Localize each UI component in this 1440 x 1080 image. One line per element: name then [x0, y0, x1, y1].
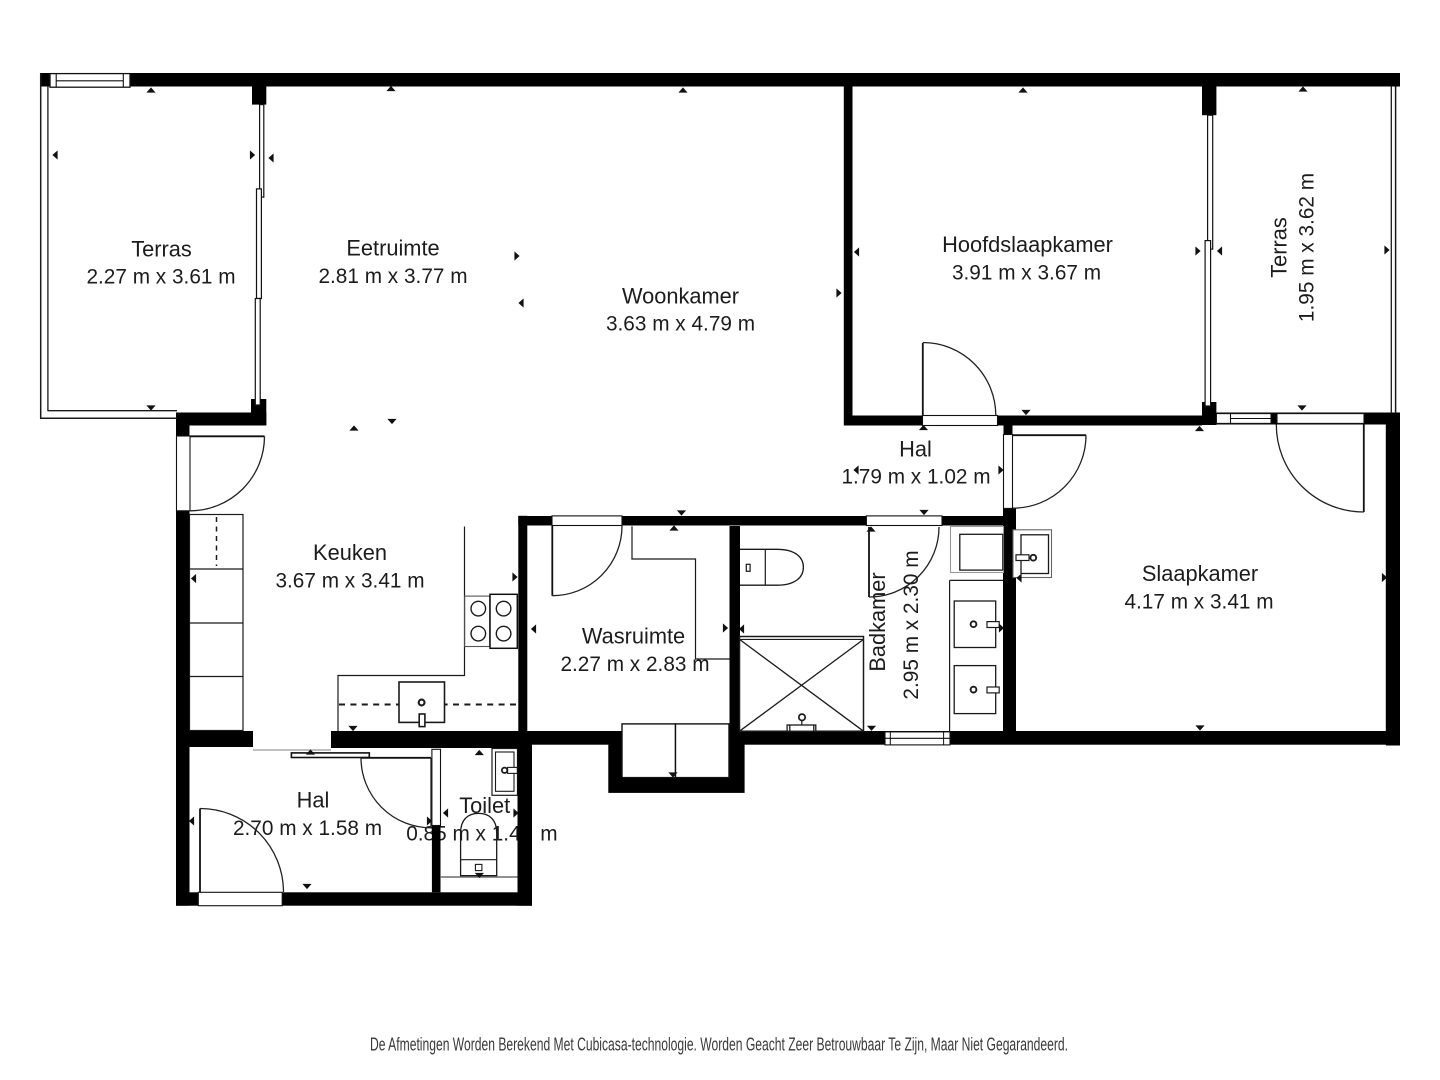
- svg-text:3.91 m x 3.67 m: 3.91 m x 3.67 m: [952, 262, 1101, 285]
- svg-text:Slaapkamer: Slaapkamer: [1142, 561, 1258, 586]
- svg-text:0.85 m x 1.4: 0.85 m x 1.4: [406, 823, 520, 846]
- svg-text:Keuken: Keuken: [313, 540, 387, 565]
- svg-text:4.17 m x 3.41 m: 4.17 m x 3.41 m: [1124, 591, 1273, 614]
- svg-text:Terras: Terras: [131, 237, 192, 262]
- svg-text:De Afmetingen Worden Berekend: De Afmetingen Worden Berekend Met Cubica…: [370, 1034, 1068, 1054]
- svg-text:1.79 m x 1.02 m: 1.79 m x 1.02 m: [841, 466, 990, 489]
- svg-text:Badkamer: Badkamer: [865, 572, 890, 671]
- svg-text:1.95 m x 3.62 m: 1.95 m x 3.62 m: [1296, 173, 1319, 322]
- svg-text:Eetruimte: Eetruimte: [346, 236, 439, 261]
- svg-text:Hoofdslaapkamer: Hoofdslaapkamer: [942, 232, 1113, 257]
- svg-text:Toilet: Toilet: [459, 793, 510, 818]
- svg-text:Woonkamer: Woonkamer: [622, 284, 739, 309]
- svg-text:2.27 m x 2.83 m: 2.27 m x 2.83 m: [560, 653, 709, 676]
- svg-text:Hal: Hal: [297, 788, 330, 813]
- svg-text:3.63 m x 4.79 m: 3.63 m x 4.79 m: [606, 313, 755, 336]
- svg-text:Wasruimte: Wasruimte: [582, 624, 685, 649]
- svg-text:3.67 m x 3.41 m: 3.67 m x 3.41 m: [275, 570, 424, 593]
- svg-text:2.70 m x 1.58 m: 2.70 m x 1.58 m: [233, 817, 382, 840]
- svg-text:Hal: Hal: [899, 437, 932, 462]
- svg-text:Terras: Terras: [1267, 217, 1292, 278]
- svg-text:2.95 m x 2.30 m: 2.95 m x 2.30 m: [900, 550, 923, 699]
- svg-text:2.27 m x 3.61 m: 2.27 m x 3.61 m: [86, 266, 235, 289]
- svg-text:2.81 m x 3.77 m: 2.81 m x 3.77 m: [318, 265, 467, 288]
- svg-text:m: m: [540, 823, 557, 846]
